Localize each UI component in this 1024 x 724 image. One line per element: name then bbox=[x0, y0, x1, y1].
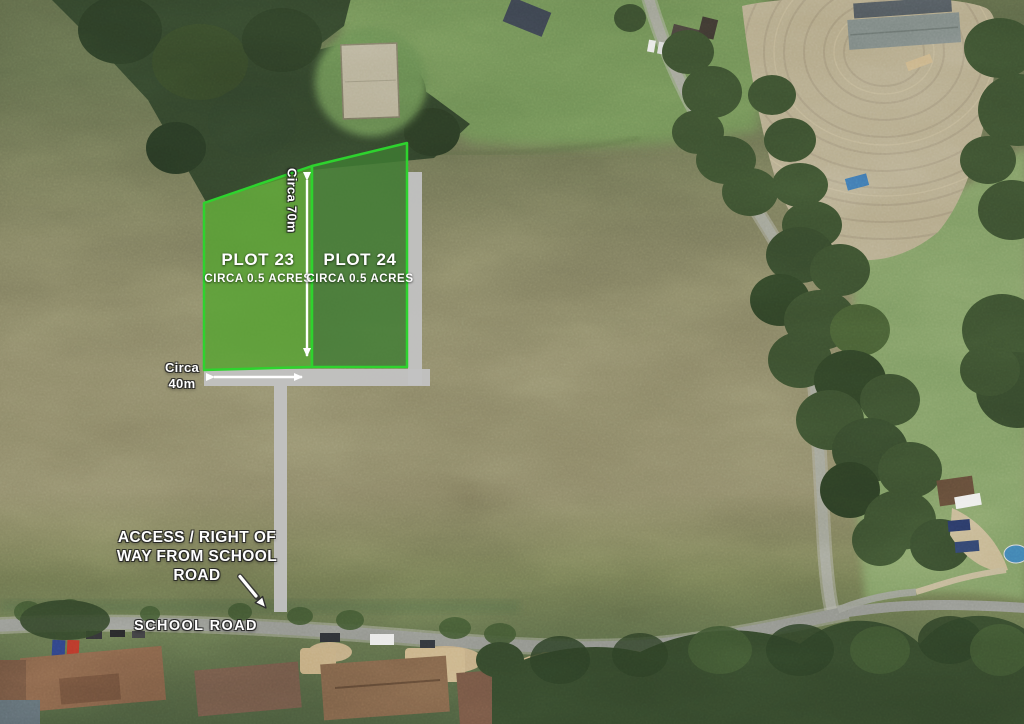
road-name-label: SCHOOL ROAD bbox=[134, 618, 258, 635]
height-dimension-label: Circa 70m bbox=[284, 168, 300, 298]
plot-24-label: PLOT 24 CIRCA 0.5 ACRES bbox=[305, 250, 415, 285]
plot-24-title: PLOT 24 bbox=[305, 250, 415, 270]
aerial-site-map: PLOT 23 CIRCA 0.5 ACRES PLOT 24 CIRCA 0.… bbox=[0, 0, 1024, 724]
access-note-label: ACCESS / RIGHT OF WAY FROM SCHOOL ROAD bbox=[90, 528, 304, 585]
plot-24-size: CIRCA 0.5 ACRES bbox=[305, 273, 415, 285]
width-dimension-label: Circa 40m bbox=[153, 360, 211, 392]
